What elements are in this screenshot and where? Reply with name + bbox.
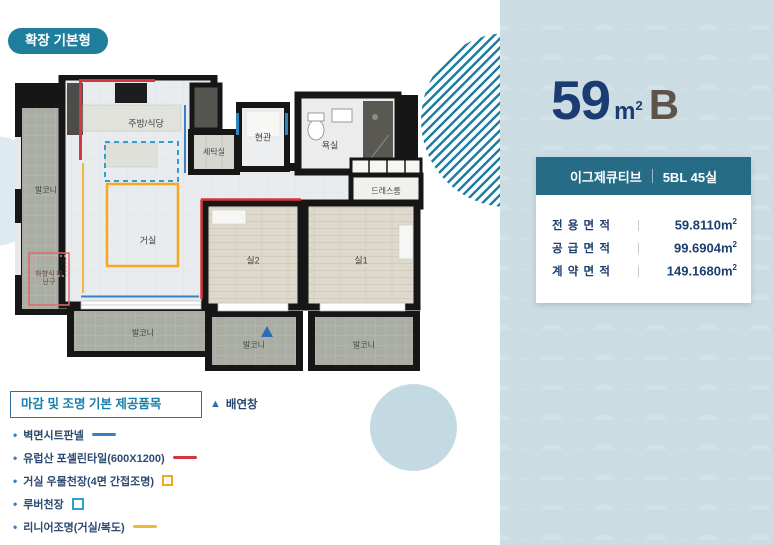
area-row-supply: 공 급 면 적 99.6904m2 (552, 240, 737, 256)
legend-item: • 유럽산 포셀린타일(600X1200) (13, 446, 197, 469)
legend-item: • 루버천장 (13, 492, 197, 515)
room-label-kitchen: 주방/식당 (128, 117, 164, 130)
bullet-icon: • (13, 497, 17, 511)
unit-type-letter: B (649, 81, 679, 128)
floor-plan: 주방/식당 세탁실 현관 욕실 드레스룸 거실 실2 실1 발코니 하향식 피난… (15, 75, 485, 385)
room-label-bathroom: 욕실 (322, 139, 339, 152)
up-triangle-icon: ▲ (210, 398, 221, 410)
unit-info-block: 5BL 45실 (663, 167, 717, 186)
area-row-contract: 계 약 면 적 149.1680m2 (552, 263, 737, 279)
legend-item: • 벽면시트판넬 (13, 423, 197, 446)
blue-line-swatch-icon (92, 433, 116, 436)
row-divider (638, 243, 639, 254)
legend-vent-label: 배연창 (226, 396, 258, 412)
row-divider (638, 266, 639, 277)
room-label-balcony-left: 발코니 (35, 185, 57, 196)
unit-info-header: 이그제큐티브 5BL 45실 (536, 157, 751, 195)
unit-title: 59m2B (520, 68, 710, 132)
room-label-entrance: 현관 (255, 131, 272, 144)
legend-item-label: 거실 우물천장(4면 간접조명) (23, 473, 154, 489)
legend-item-label: 리니어조명(거실/복도) (23, 519, 124, 535)
header-divider (652, 169, 653, 183)
bullet-icon: • (13, 451, 17, 465)
legend-items: • 벽면시트판넬 • 유럽산 포셀린타일(600X1200) • 거실 우물천장… (13, 423, 197, 538)
floor-plan-drawing (15, 75, 485, 385)
room-label-balcony-room1: 발코니 (353, 340, 375, 351)
unit-info-body: 전 용 면 적 59.8110m2 공 급 면 적 99.6904m2 계 약 … (536, 195, 751, 303)
room-label-balcony-room2: 발코니 (243, 340, 265, 351)
legend-title: 마감 및 조명 기본 제공품목 (10, 391, 202, 418)
room-label-dressroom: 드레스룸 (371, 186, 400, 197)
solid-circle-decoration (370, 384, 457, 471)
legend-vent: ▲ 배연창 (210, 396, 258, 412)
room-label-room1: 실1 (354, 254, 367, 267)
area-row-exclusive: 전 용 면 적 59.8110m2 (552, 217, 737, 233)
legend-item: • 리니어조명(거실/복도) (13, 515, 197, 538)
room-label-escape-hatch: 하향식 피난구 (33, 271, 65, 287)
bullet-icon: • (13, 474, 17, 488)
room-label-living: 거실 (140, 234, 157, 247)
room-label-room2: 실2 (246, 254, 259, 267)
bullet-icon: • (13, 520, 17, 534)
unit-size-unit: m2 (614, 98, 643, 125)
room-label-balcony-living: 발코니 (132, 328, 154, 339)
brochure-page: { "badge": { "label": "확장 기본형" }, "panel… (0, 0, 773, 545)
unit-size-number: 59 (551, 69, 610, 131)
legend-item-label: 유럽산 포셀린타일(600X1200) (23, 450, 165, 466)
orange-square-swatch-icon (162, 475, 173, 486)
bullet-icon: • (13, 428, 17, 442)
room-label-laundry: 세탁실 (203, 147, 225, 158)
yellow-line-swatch-icon (133, 525, 157, 528)
unit-info-box: 이그제큐티브 5BL 45실 전 용 면 적 59.8110m2 공 급 면 적… (536, 157, 751, 303)
unit-info-panel: 59m2B 이그제큐티브 5BL 45실 전 용 면 적 59.8110m2 공… (500, 0, 773, 545)
legend-item: • 거실 우물천장(4면 간접조명) (13, 469, 197, 492)
unit-info-name: 이그제큐티브 (570, 167, 642, 186)
red-line-swatch-icon (173, 456, 197, 459)
legend-item-label: 루버천장 (23, 496, 63, 512)
row-divider (638, 220, 639, 231)
plan-type-badge: 확장 기본형 (8, 28, 108, 54)
legend-item-label: 벽면시트판넬 (23, 427, 84, 443)
blue-dashed-square-swatch-icon (72, 498, 84, 510)
